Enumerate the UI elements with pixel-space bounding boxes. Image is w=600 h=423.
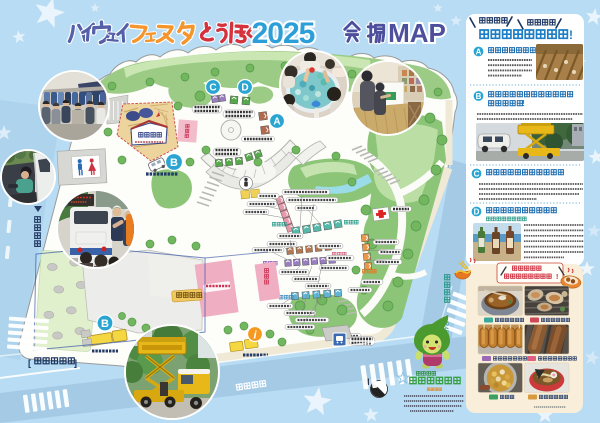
svg-text:A: A <box>273 117 280 128</box>
svg-text:]: ] <box>74 358 77 368</box>
svg-text:MAP: MAP <box>388 18 446 48</box>
svg-text:!: ! <box>522 99 525 108</box>
svg-text:[: [ <box>28 358 31 368</box>
svg-text:B: B <box>476 92 482 101</box>
svg-text:!: ! <box>556 274 558 281</box>
svg-text:B: B <box>170 157 178 169</box>
svg-text:C: C <box>474 169 480 178</box>
svg-text:B: B <box>101 318 109 330</box>
svg-text:C: C <box>209 83 216 94</box>
svg-text:D: D <box>474 207 480 216</box>
svg-text:!: ! <box>569 28 573 42</box>
svg-text:2025: 2025 <box>252 17 315 50</box>
svg-text:A: A <box>476 47 482 56</box>
svg-text:D: D <box>241 83 248 94</box>
